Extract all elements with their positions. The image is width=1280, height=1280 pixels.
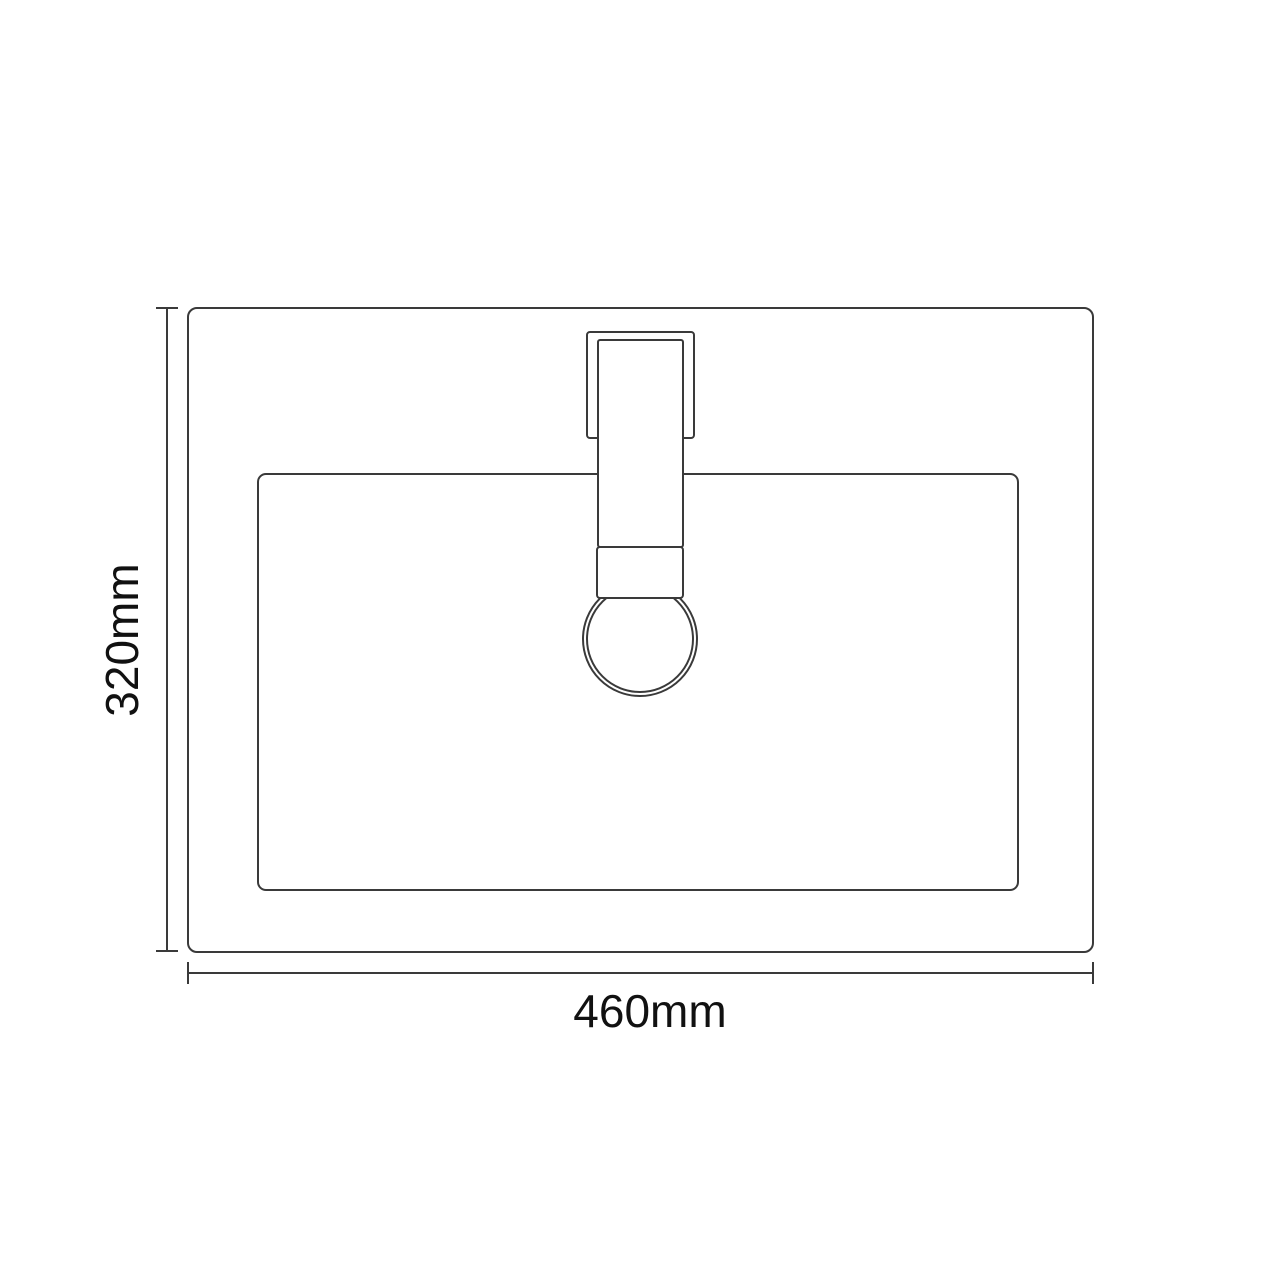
height-dimension-line	[156, 308, 178, 951]
width-dimension-label: 460mm	[573, 985, 726, 1037]
faucet-neck	[597, 547, 683, 598]
technical-drawing-canvas: 320mm 460mm	[0, 0, 1280, 1280]
width-dimension-line	[188, 962, 1093, 984]
sink-dimension-drawing: 320mm 460mm	[0, 0, 1280, 1280]
height-dimension-label: 320mm	[96, 563, 148, 716]
faucet-body	[598, 340, 683, 547]
